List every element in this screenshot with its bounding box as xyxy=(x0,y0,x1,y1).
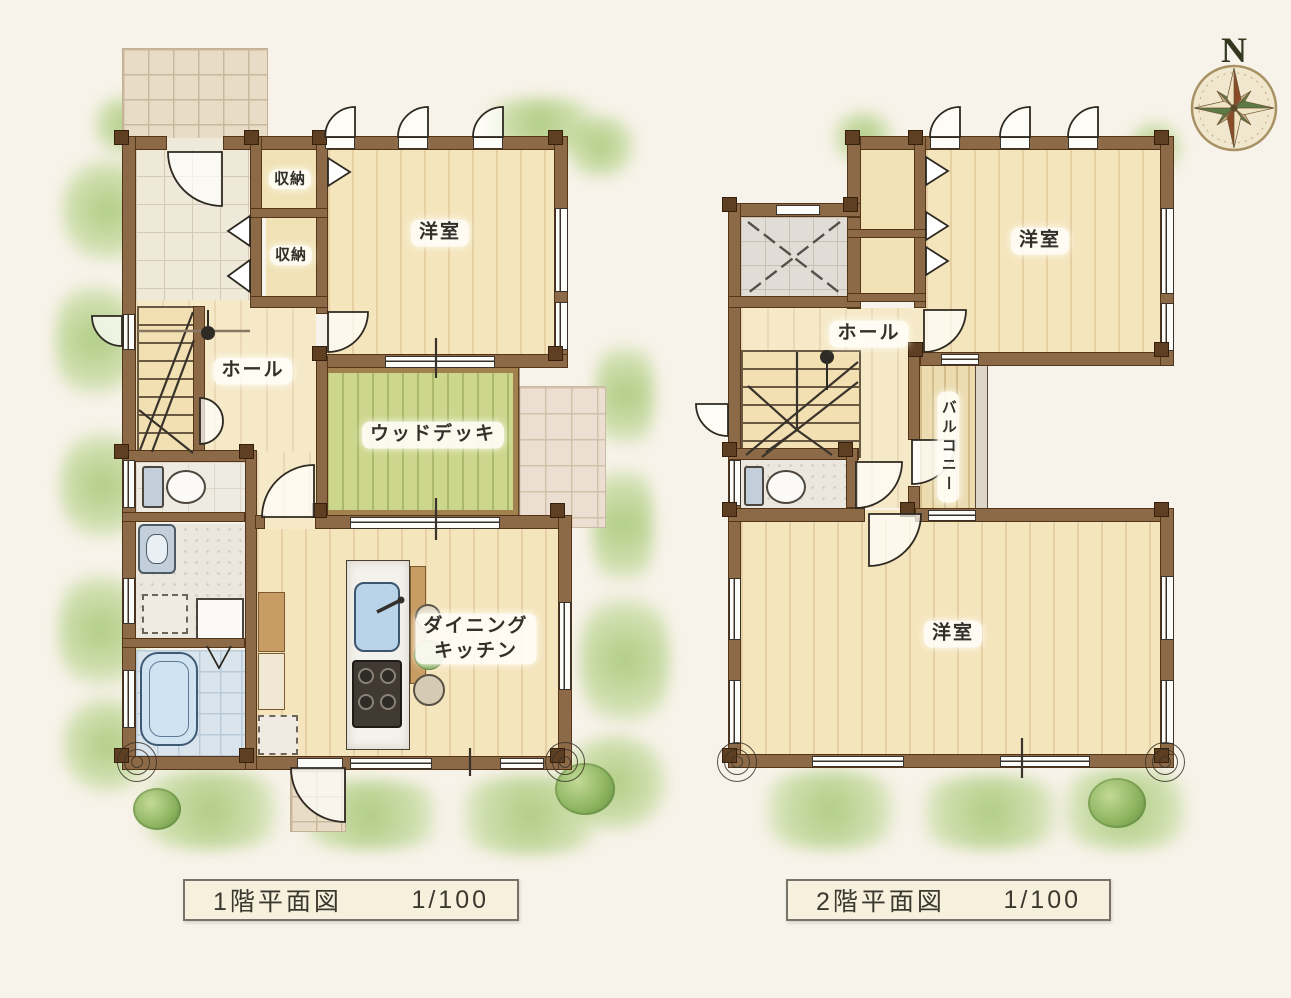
corner-stamp xyxy=(1145,742,1185,782)
pillar xyxy=(843,197,858,212)
dk-cabinet-low xyxy=(258,653,285,710)
window xyxy=(473,137,503,149)
compass-rose: N xyxy=(1186,22,1282,154)
window xyxy=(555,302,568,350)
casement-arc xyxy=(1000,107,1030,137)
window xyxy=(123,460,135,508)
wall xyxy=(846,448,858,508)
greenery xyxy=(560,115,640,177)
room-closet-2f-b xyxy=(861,238,914,293)
pillar xyxy=(845,130,860,145)
porch-tiles xyxy=(290,770,346,832)
washing-machine xyxy=(196,598,244,640)
room-label-hall-2f: ホール xyxy=(829,321,908,348)
label-line-dining: ダイニング xyxy=(423,614,528,639)
window xyxy=(123,578,135,624)
greenery xyxy=(580,580,670,740)
wall xyxy=(914,136,926,308)
pillar xyxy=(1154,130,1169,145)
wall xyxy=(122,638,245,648)
room-closet-2f-a xyxy=(861,150,914,229)
wall xyxy=(255,515,265,529)
wall xyxy=(245,450,257,770)
room-corridor-1f xyxy=(257,452,316,516)
stove-burner xyxy=(358,694,374,710)
doorway xyxy=(265,517,315,529)
label-line-kitchen: キッチン xyxy=(423,639,528,664)
stove-burner xyxy=(380,694,396,710)
floor1-scale: 1/100 xyxy=(411,886,489,915)
window xyxy=(555,208,568,292)
pillar xyxy=(722,502,737,517)
wall xyxy=(122,450,257,462)
window xyxy=(729,680,741,744)
doorway xyxy=(167,138,223,150)
window xyxy=(812,756,904,767)
sliding-door xyxy=(350,517,500,529)
toilet-tank xyxy=(744,466,764,506)
casement-arc xyxy=(1068,107,1098,137)
pillar xyxy=(838,442,853,457)
wall xyxy=(728,296,861,308)
window xyxy=(123,314,135,350)
room-western-1f xyxy=(328,150,554,354)
balcony-railing xyxy=(975,356,988,512)
pillar xyxy=(722,197,737,212)
pillar xyxy=(239,748,254,763)
stairs-1f xyxy=(137,306,195,454)
stove-burner xyxy=(358,668,374,684)
compass-north-label: N xyxy=(1221,30,1247,70)
pillar xyxy=(114,130,129,145)
pillar xyxy=(239,444,254,459)
room-label-closet2: 収納 xyxy=(270,245,312,265)
floor1-title-box: 1階平面図 1/100 xyxy=(183,879,519,921)
sliding-door xyxy=(941,354,979,365)
corner-stamp xyxy=(545,742,585,782)
wall xyxy=(908,352,920,440)
pillar xyxy=(312,130,327,145)
bush xyxy=(133,788,181,830)
stove-burner xyxy=(380,668,396,684)
window xyxy=(325,137,355,149)
pillar xyxy=(722,442,737,457)
corner-stamp xyxy=(117,742,157,782)
bathtub xyxy=(140,652,198,746)
window xyxy=(1161,576,1174,640)
stool xyxy=(413,674,445,706)
floor2-title-box: 2階平面図 1/100 xyxy=(786,879,1111,921)
room-label-western-2f-main: 洋室 xyxy=(924,621,982,648)
window xyxy=(500,758,544,769)
window xyxy=(729,578,741,640)
room-label-western-2f-top: 洋室 xyxy=(1011,228,1069,255)
window xyxy=(1161,680,1174,744)
window xyxy=(930,137,960,149)
window xyxy=(776,205,820,215)
room-label-dining-kitchen: ダイニング キッチン xyxy=(415,613,536,664)
window xyxy=(398,137,428,149)
dk-cabinet xyxy=(258,592,285,652)
wall xyxy=(847,293,926,302)
wall xyxy=(847,229,926,238)
room-label-western-1f: 洋室 xyxy=(411,220,469,247)
door-arc xyxy=(696,404,728,436)
pillar xyxy=(1154,502,1169,517)
stair-rail-wall xyxy=(193,306,205,456)
sliding-door xyxy=(928,510,976,521)
wall xyxy=(316,356,328,515)
floor2-title: 2階平面図 xyxy=(816,882,945,918)
floor1-title: 1階平面図 xyxy=(213,882,342,918)
window xyxy=(1000,756,1090,767)
toilet-tank xyxy=(142,466,164,508)
vanity-bowl xyxy=(146,534,168,564)
floor-plan-page: 収納 収納 洋室 ホール ウッドデッキ ダイニング キッチン ホール 洋室 バル… xyxy=(0,0,1291,998)
room-label-closet1: 収納 xyxy=(269,169,311,189)
room-void-2f xyxy=(741,217,847,300)
sliding-door xyxy=(385,356,495,368)
pillar xyxy=(312,503,327,518)
casement-arc xyxy=(930,107,960,137)
pillar xyxy=(900,502,915,517)
pillar xyxy=(548,130,563,145)
pillar xyxy=(908,342,923,357)
pillar xyxy=(550,503,565,518)
floor2-scale: 1/100 xyxy=(1003,886,1081,915)
room-label-balcony: バルコニー xyxy=(937,392,959,503)
dk-pan xyxy=(258,715,298,755)
approach-tiles xyxy=(122,48,268,142)
corner-stamp xyxy=(717,742,757,782)
pillar xyxy=(312,346,327,361)
window xyxy=(350,758,432,769)
pillar xyxy=(244,130,259,145)
casement-arc xyxy=(398,107,428,137)
window xyxy=(1161,208,1174,294)
room-label-wood-deck: ウッドデッキ xyxy=(362,422,504,449)
window xyxy=(729,460,741,506)
wall xyxy=(728,508,865,522)
pillar xyxy=(114,444,129,459)
window xyxy=(559,602,571,690)
room-label-hall-1f: ホール xyxy=(213,358,292,385)
window xyxy=(1000,137,1030,149)
laundry-pan xyxy=(142,594,188,634)
door-opening xyxy=(297,758,343,769)
wall xyxy=(250,208,328,218)
wall xyxy=(122,512,245,522)
greenery xyxy=(745,770,915,850)
window xyxy=(123,670,135,728)
wall xyxy=(316,136,328,314)
casement-arc xyxy=(325,107,355,137)
pillar xyxy=(908,130,923,145)
wall xyxy=(250,296,328,308)
kitchen-sink xyxy=(354,582,400,652)
bush xyxy=(1088,778,1146,828)
pillar xyxy=(1154,342,1169,357)
wall xyxy=(250,136,262,308)
wall xyxy=(728,754,1174,768)
window xyxy=(1068,137,1098,149)
toilet-bowl xyxy=(166,470,206,504)
wall xyxy=(223,136,568,150)
toilet-bowl xyxy=(766,470,806,504)
pillar xyxy=(548,346,563,361)
